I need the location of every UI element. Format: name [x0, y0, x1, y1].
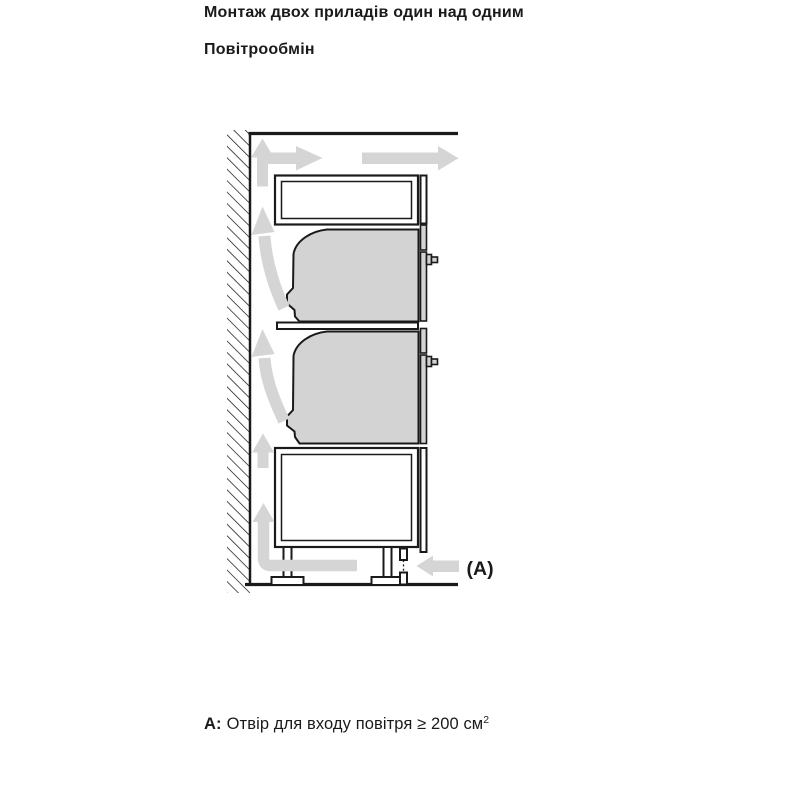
base-cabinet [275, 448, 427, 552]
upper-oven-handle [427, 255, 438, 265]
wall-hatching [227, 130, 250, 593]
lower-oven-door [421, 355, 427, 444]
right-foot [372, 547, 404, 585]
base-cabinet-front-panel [421, 448, 427, 552]
caption-superscript: 2 [483, 714, 489, 726]
upper-oven-door [421, 252, 427, 321]
airflow-arrow-base-top [252, 434, 274, 469]
lower-oven-body [287, 332, 419, 444]
middle-shelf [277, 323, 418, 330]
lower-oven-handle [427, 357, 438, 367]
upper-oven-control-panel [421, 225, 427, 250]
airflow-arrow-inlet [417, 556, 460, 577]
base-cabinet-outer [275, 448, 418, 547]
air-inlet-label: (A) [467, 558, 494, 580]
caption-prefix: A: [204, 715, 222, 733]
air-inlet-indicator [400, 549, 407, 585]
caption-text: Отвір для входу повітря ≥ 200 см [227, 715, 484, 733]
airflow-arrow-lower-curve [252, 329, 285, 421]
lower-oven-control-panel [421, 329, 427, 354]
top-cabinet-front-panel [421, 176, 427, 224]
upper-oven-body [287, 230, 419, 322]
airflow-arrow-top [362, 146, 459, 171]
upper-oven [287, 225, 438, 322]
top-cabinet [275, 176, 427, 225]
lower-oven [287, 329, 438, 444]
caption: A:Отвір для входу повітря ≥ 200 см2 [204, 714, 489, 734]
manual-page: Монтаж двох приладів один над одним Пові… [0, 0, 800, 800]
installation-diagram: (A) [0, 0, 800, 800]
top-cabinet-outer [275, 176, 418, 225]
